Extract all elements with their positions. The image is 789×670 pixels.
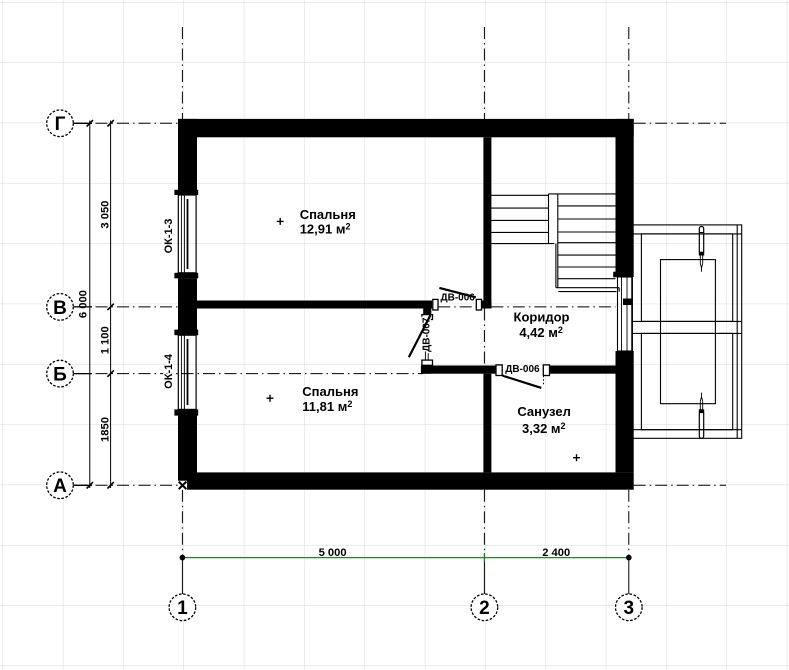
svg-text:1 100: 1 100 [99,326,111,354]
svg-text:5 000: 5 000 [319,547,347,559]
svg-text:6 000: 6 000 [78,290,90,318]
svg-text:В: В [53,298,67,319]
svg-text:Б: Б [53,365,67,386]
svg-text:ОК-1-4: ОК-1-4 [163,353,175,389]
svg-text:11,81 м2: 11,81 м2 [302,399,352,414]
svg-text:Спальня: Спальня [300,207,356,222]
svg-text:3 050: 3 050 [99,201,111,229]
svg-text:Г: Г [55,114,66,135]
svg-text:3: 3 [624,598,635,619]
svg-text:А: А [53,476,67,497]
svg-text:ОК-1-3: ОК-1-3 [163,219,175,254]
svg-text:4,42 м2: 4,42 м2 [519,325,563,340]
svg-text:2 400: 2 400 [542,547,570,559]
svg-text:12,91 м2: 12,91 м2 [300,222,351,237]
svg-text:ДВ-006: ДВ-006 [505,364,540,375]
svg-text:ДВ-006: ДВ-006 [441,292,476,303]
svg-text:Санузел: Санузел [517,404,570,419]
svg-text:3,32 м2: 3,32 м2 [522,421,566,436]
svg-text:1850: 1850 [99,417,111,442]
svg-text:2: 2 [479,598,490,619]
svg-text:Коридор: Коридор [514,310,570,325]
svg-text:1: 1 [177,598,188,619]
svg-text:Спальня: Спальня [302,384,358,399]
